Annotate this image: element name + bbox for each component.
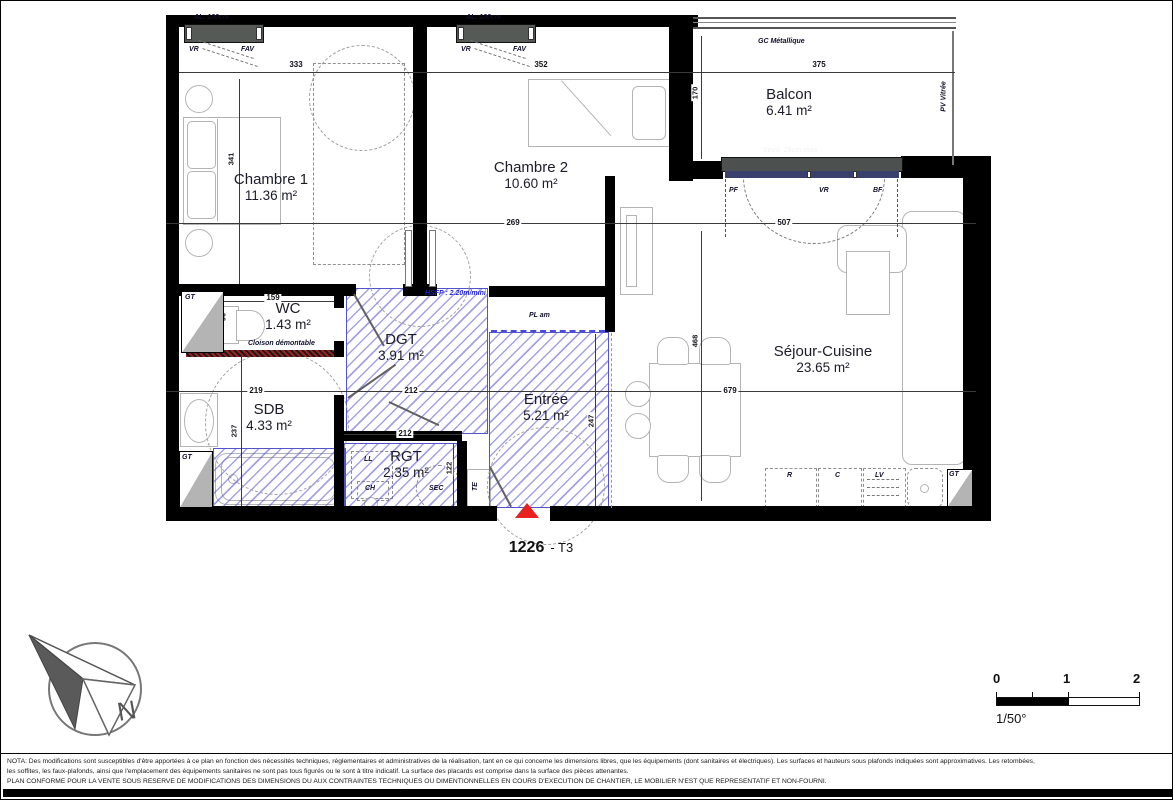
wall xyxy=(605,176,615,332)
scale-bar-graphic xyxy=(996,697,1140,706)
stool xyxy=(625,413,651,439)
scale-tick-label: 2 xyxy=(1133,671,1140,686)
room-label-wc: WC 1.43 m² xyxy=(213,300,363,333)
vr-label: VR xyxy=(189,46,199,53)
window-cap xyxy=(186,27,192,40)
bed-line xyxy=(217,119,218,221)
ceiling-spot-icon xyxy=(185,85,213,113)
room-area: 2.35 m² xyxy=(331,465,481,481)
fav-label: FAV xyxy=(513,46,526,53)
room-name: RGT xyxy=(331,448,481,465)
north-arrow-icon: N xyxy=(23,629,173,759)
bay-dashed-jamb xyxy=(725,179,726,237)
window-chambre2 xyxy=(456,24,536,43)
dishwasher-line xyxy=(867,495,899,496)
dining-table xyxy=(649,363,741,457)
sink-drain xyxy=(920,484,929,493)
room-name: DGT xyxy=(326,331,476,348)
bay-window-mullion xyxy=(853,171,857,178)
chair xyxy=(657,455,689,483)
room-area: 10.60 m² xyxy=(456,176,606,192)
dim-label: 352 xyxy=(532,61,549,69)
dishwasher-line xyxy=(867,479,899,480)
bay-window-glass xyxy=(725,171,899,178)
nota-line: les soffites, les faux-plafonds, ainsi q… xyxy=(7,767,1169,777)
dim-label: 375 xyxy=(810,61,827,69)
room-area: 5.21 m² xyxy=(471,408,621,424)
window-height-label: AL. 100cm xyxy=(194,14,229,21)
dryer-label: SEC xyxy=(429,485,443,492)
dim-label: 219 xyxy=(247,387,264,395)
entrance-arrow-icon xyxy=(515,503,539,518)
wall xyxy=(413,15,427,291)
stool xyxy=(625,381,651,407)
wall xyxy=(963,156,991,521)
room-area: 6.41 m² xyxy=(714,103,864,119)
scale-tick-label: 1 xyxy=(1063,671,1070,686)
door-leaf-chambre1 xyxy=(405,230,412,287)
room-name: Entrée xyxy=(471,391,621,408)
electrical-panel-label: TE xyxy=(472,482,479,491)
room-label-sdb: SDB 4.33 m² xyxy=(194,401,344,434)
window-cap xyxy=(528,27,534,40)
glazed-panel-label: PV Vitrée xyxy=(941,81,948,111)
footer-rule xyxy=(1,753,1173,754)
room-label-dgt: DGT 3.91 m² xyxy=(326,331,476,364)
vr-label: VR xyxy=(819,187,829,194)
floor-plan-page: 333 352 375 341 170 269 507 159 90 219 2… xyxy=(0,0,1173,800)
wall xyxy=(166,506,497,521)
window-chambre1 xyxy=(184,24,264,43)
room-label-chambre2: Chambre 2 10.60 m² xyxy=(456,159,606,192)
chair xyxy=(699,455,731,483)
nota-line: NOTA: Des modifications sont susceptible… xyxy=(7,757,1169,767)
room-area: 3.91 m² xyxy=(326,348,476,364)
dim-label: 170 xyxy=(691,85,699,102)
dim-label: 468 xyxy=(691,333,699,350)
scale-tick-label: 0 xyxy=(993,671,1000,686)
room-name: Séjour-Cuisine xyxy=(748,343,898,360)
wall xyxy=(166,15,179,521)
scale-ratio: 1/50° xyxy=(996,711,1027,726)
balcony-railing-side xyxy=(952,31,954,165)
ceiling-spot-icon xyxy=(185,229,213,257)
room-label-entree: Entrée 5.21 m² xyxy=(471,391,621,424)
dim-label: 269 xyxy=(504,219,521,227)
turning-circle xyxy=(487,427,605,545)
room-label-rgt: RGT 2.35 m² xyxy=(331,448,481,481)
cloison-label: Cloison démontable xyxy=(248,340,315,347)
dim-label: 212 xyxy=(396,430,413,438)
kitchen-dishwasher-slot xyxy=(863,468,906,508)
room-area: 4.33 m² xyxy=(194,418,344,434)
turning-circle xyxy=(309,45,415,151)
dishwasher-label: LV xyxy=(875,472,884,479)
dim-line xyxy=(179,72,955,73)
north-label: N xyxy=(115,694,139,727)
gt-label: GT xyxy=(949,471,959,478)
bay-window-sill xyxy=(721,157,903,172)
door-leaf-chambre2 xyxy=(429,230,436,287)
nota-line: PLAN CONFORME POUR LA VENTE SOUS RESERVE… xyxy=(7,777,1169,787)
tall-kitchen-unit-door xyxy=(626,215,637,287)
room-name: Balcon xyxy=(714,86,864,103)
scale-bar-fill xyxy=(997,698,1069,705)
water-heater-label: CH xyxy=(365,485,375,492)
pf-label: PF xyxy=(729,187,738,194)
dim-line xyxy=(701,231,702,501)
dim-label: 212 xyxy=(402,387,419,395)
balcony-railing xyxy=(693,22,956,23)
gt-label: GT xyxy=(182,454,192,461)
fridge-label: R xyxy=(787,472,792,479)
railing-label: GC Métallique xyxy=(758,38,805,45)
chair xyxy=(699,337,731,365)
plan-type: - T3 xyxy=(550,540,573,555)
bf-label: BF xyxy=(873,187,882,194)
chair xyxy=(657,337,689,365)
bay-dashed-jamb xyxy=(897,179,898,237)
room-label-balcon: Balcon 6.41 m² xyxy=(714,86,864,119)
wall xyxy=(489,286,613,297)
room-label-sejour: Séjour-Cuisine 23.65 m² xyxy=(748,343,898,376)
vr-label: VR xyxy=(461,46,471,53)
window-cap xyxy=(458,27,464,40)
nota-disclaimer: NOTA: Des modifications sont susceptible… xyxy=(7,757,1169,787)
dim-label: 679 xyxy=(721,387,738,395)
dim-line xyxy=(701,36,702,159)
wall xyxy=(669,161,723,179)
dim-label: 507 xyxy=(775,219,792,227)
room-name: SDB xyxy=(194,401,344,418)
placard-front-dashed xyxy=(491,330,605,332)
fav-label: FAV xyxy=(241,46,254,53)
plan-number: 1226 xyxy=(509,539,545,556)
pillow xyxy=(632,86,666,140)
room-area: 23.65 m² xyxy=(748,360,898,376)
balcony-railing xyxy=(693,27,956,29)
plan-title: 1226- T3 xyxy=(441,539,641,557)
wall xyxy=(550,506,991,521)
room-area: 11.36 m² xyxy=(196,188,346,204)
gt-label: GT xyxy=(185,294,195,301)
dim-label: 333 xyxy=(287,61,304,69)
room-label-chambre1: Chambre 1 11.36 m² xyxy=(196,171,346,204)
balcony-railing xyxy=(693,17,956,19)
threshold-label: Seuil. 25cm max xyxy=(763,147,817,154)
hsfp-label: HSFP : 2.20m/mini xyxy=(425,290,486,297)
dishwasher-line xyxy=(867,487,899,488)
dim-line xyxy=(166,223,976,224)
footer-bar xyxy=(3,789,1172,797)
room-name: Chambre 1 xyxy=(196,171,346,188)
cooker-label: C xyxy=(835,472,840,479)
sofa xyxy=(902,211,966,465)
dim-label: 341 xyxy=(227,151,235,168)
pillow xyxy=(187,121,216,169)
bay-window-mullion xyxy=(807,171,811,178)
window-height-label: AL. 100cm xyxy=(466,14,501,21)
room-name: Chambre 2 xyxy=(456,159,606,176)
coffee-table xyxy=(846,251,890,315)
scale-bar: 0 1 2 1/50° xyxy=(993,671,1143,731)
placard-label: PL am xyxy=(529,312,550,319)
window-cap xyxy=(256,27,262,40)
room-name: WC xyxy=(213,300,363,317)
